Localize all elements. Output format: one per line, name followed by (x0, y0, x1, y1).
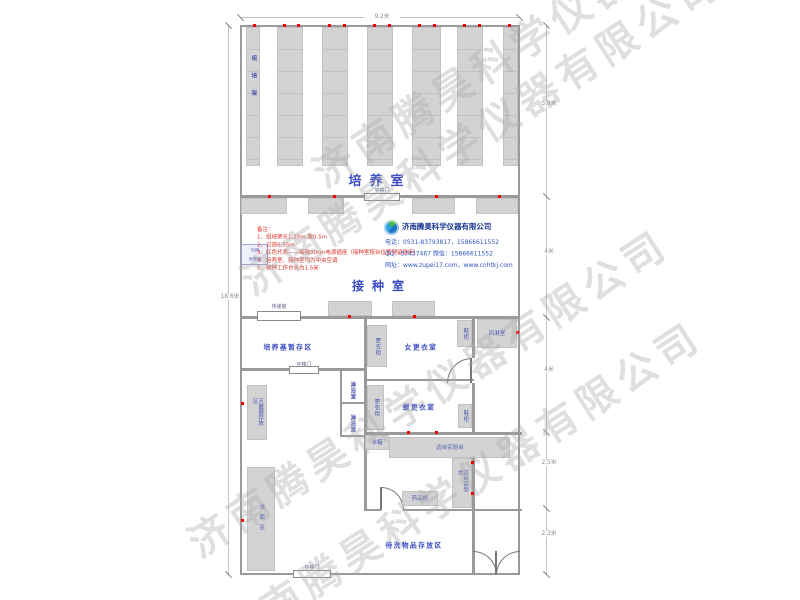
shoe-cabinet-1-label: 鞋柜 (462, 327, 468, 339)
double-door-leaf (495, 551, 497, 575)
culture-rack (322, 27, 348, 166)
company-name: 济南腾昊科学仪器有限公司 (402, 221, 491, 232)
company-phone: 电话：0531-83793817，15866611552 (385, 237, 513, 248)
power-socket-marker (435, 195, 438, 198)
door-leaf-changing (470, 358, 472, 383)
company-website: 网址：www.zupei17.com，www.cnhtkj.com (385, 260, 513, 271)
sliding-door-3 (293, 570, 331, 578)
work-bench (241, 198, 287, 214)
fridge-label: 冰箱 (372, 440, 383, 446)
wardrobe-2-label: 更衣柜 (373, 398, 379, 416)
shoe-cabinet-1-block: 鞋柜 (457, 320, 472, 347)
rack-label-text: 组培架 (250, 55, 256, 108)
side-bench-v-block: 边台实验台 (452, 458, 472, 508)
dimension-line-left (228, 25, 229, 575)
wardrobe-1-label: 更衣柜 (374, 337, 380, 355)
culture-rack (277, 27, 303, 166)
power-socket-marker (463, 24, 466, 27)
power-socket-marker (283, 24, 286, 27)
pass-window-label: 传递窗 (268, 305, 290, 310)
room-label-inoculation: 接种室 (332, 277, 432, 294)
power-socket-marker (471, 461, 474, 464)
door-leaf-bench-room (380, 487, 382, 510)
sterilizer-area-block: 灭菌器存放区 (247, 385, 267, 440)
power-socket-marker (407, 431, 410, 434)
culture-rack (367, 27, 393, 166)
room-label-cultivation: 培养室 (330, 170, 430, 189)
company-contacts: 电话：0531-83793817，15866611552 QQ：57437467… (385, 237, 513, 271)
floorplan-canvas: 9.2米 18.6米 5.8米 4米 4米 2.5米 2.3米 平移门 传递窗 … (0, 0, 800, 600)
power-socket-marker (268, 195, 271, 198)
work-bench (476, 198, 518, 214)
power-socket-marker (297, 24, 300, 27)
shower-2-label: 淋浴室 (349, 414, 355, 432)
side-bench-h-label: 边台实验台 (436, 445, 464, 451)
power-socket-marker (343, 24, 346, 27)
wardrobe-2-block: 更衣柜 (367, 385, 384, 430)
culture-rack (412, 27, 441, 166)
power-socket-marker (418, 24, 421, 27)
power-socket-marker (253, 24, 256, 27)
room-label-buffer-changing: 缓更衣室 (392, 401, 446, 411)
power-socket-marker (516, 331, 519, 334)
sliding-door-2 (289, 366, 319, 374)
power-socket-marker (508, 24, 511, 27)
power-socket-marker (435, 431, 438, 434)
power-socket-marker (333, 195, 336, 198)
work-bench (392, 301, 435, 316)
work-bench (328, 301, 372, 316)
side-bench-h-block: 边台实验台 (389, 437, 510, 458)
wall-bench-room-south-b (403, 509, 522, 511)
shower-1-label: 淋浴室 (349, 381, 355, 399)
power-socket-marker (328, 24, 331, 27)
fridge-block: 冰箱 (365, 435, 389, 450)
work-bench (412, 198, 455, 214)
side-bench-v-label: 边台实验台 (457, 470, 468, 496)
air-shower-label: 风淋室 (489, 331, 506, 337)
company-qq-wechat: QQ：57437467 微信：15866611552 (385, 248, 513, 259)
power-socket-marker (241, 519, 244, 522)
room-label-medium-storage: 培养基暂存区 (257, 341, 318, 351)
dimension-right-label-3: 4米 (541, 367, 557, 373)
rack-label: 组培架 (244, 55, 262, 155)
wardrobe-1-block: 更衣柜 (367, 325, 387, 367)
power-socket-marker (433, 24, 436, 27)
power-socket-marker (388, 24, 391, 27)
pass-window (257, 311, 301, 321)
dimension-right-label-2: 4米 (541, 249, 557, 255)
dimension-right-label-1: 5.8米 (540, 101, 559, 107)
medicine-cabinet-label: 药品柜 (412, 496, 429, 502)
power-socket-marker (348, 315, 351, 318)
dimension-line-right (546, 25, 547, 575)
sliding-door-1 (364, 193, 400, 201)
room-label-to-wash-storage: 待洗物品存放区 (377, 539, 450, 549)
wall-bench-room-south-a (364, 509, 381, 511)
culture-rack (457, 27, 483, 166)
dimension-top-label: 9.2米 (365, 14, 400, 20)
company-logo-icon (384, 220, 399, 235)
bottle-wash-label: 洗瓶区 (258, 504, 264, 534)
power-socket-marker (471, 492, 474, 495)
shower-1-label-wrap: 淋浴室 (343, 374, 361, 411)
bottle-wash-block: 洗瓶区 (247, 467, 275, 571)
dimension-right-label-5: 2.3米 (540, 531, 559, 537)
wall-east-corridor-2 (472, 383, 475, 433)
shoe-cabinet-2-label: 鞋柜 (462, 410, 468, 422)
room-label-women-changing: 女更衣室 (394, 341, 448, 351)
dimension-right-label-4: 2.5米 (540, 460, 559, 466)
power-socket-marker (478, 24, 481, 27)
power-socket-marker (498, 195, 501, 198)
culture-rack (503, 27, 518, 166)
work-bench (308, 198, 344, 214)
medicine-cabinet-block: 药品柜 (402, 491, 438, 506)
power-socket-marker (241, 402, 244, 405)
power-socket-marker (373, 24, 376, 27)
wall-east-corridor-1 (472, 318, 475, 358)
air-shower-block: 风淋室 (477, 319, 517, 348)
power-socket-marker (413, 315, 416, 318)
sterilizer-area-label: 灭菌器存放区 (252, 398, 263, 427)
shoe-cabinet-2-block: 鞋柜 (458, 404, 472, 428)
shower-2-label-wrap: 淋浴室 (343, 407, 361, 444)
